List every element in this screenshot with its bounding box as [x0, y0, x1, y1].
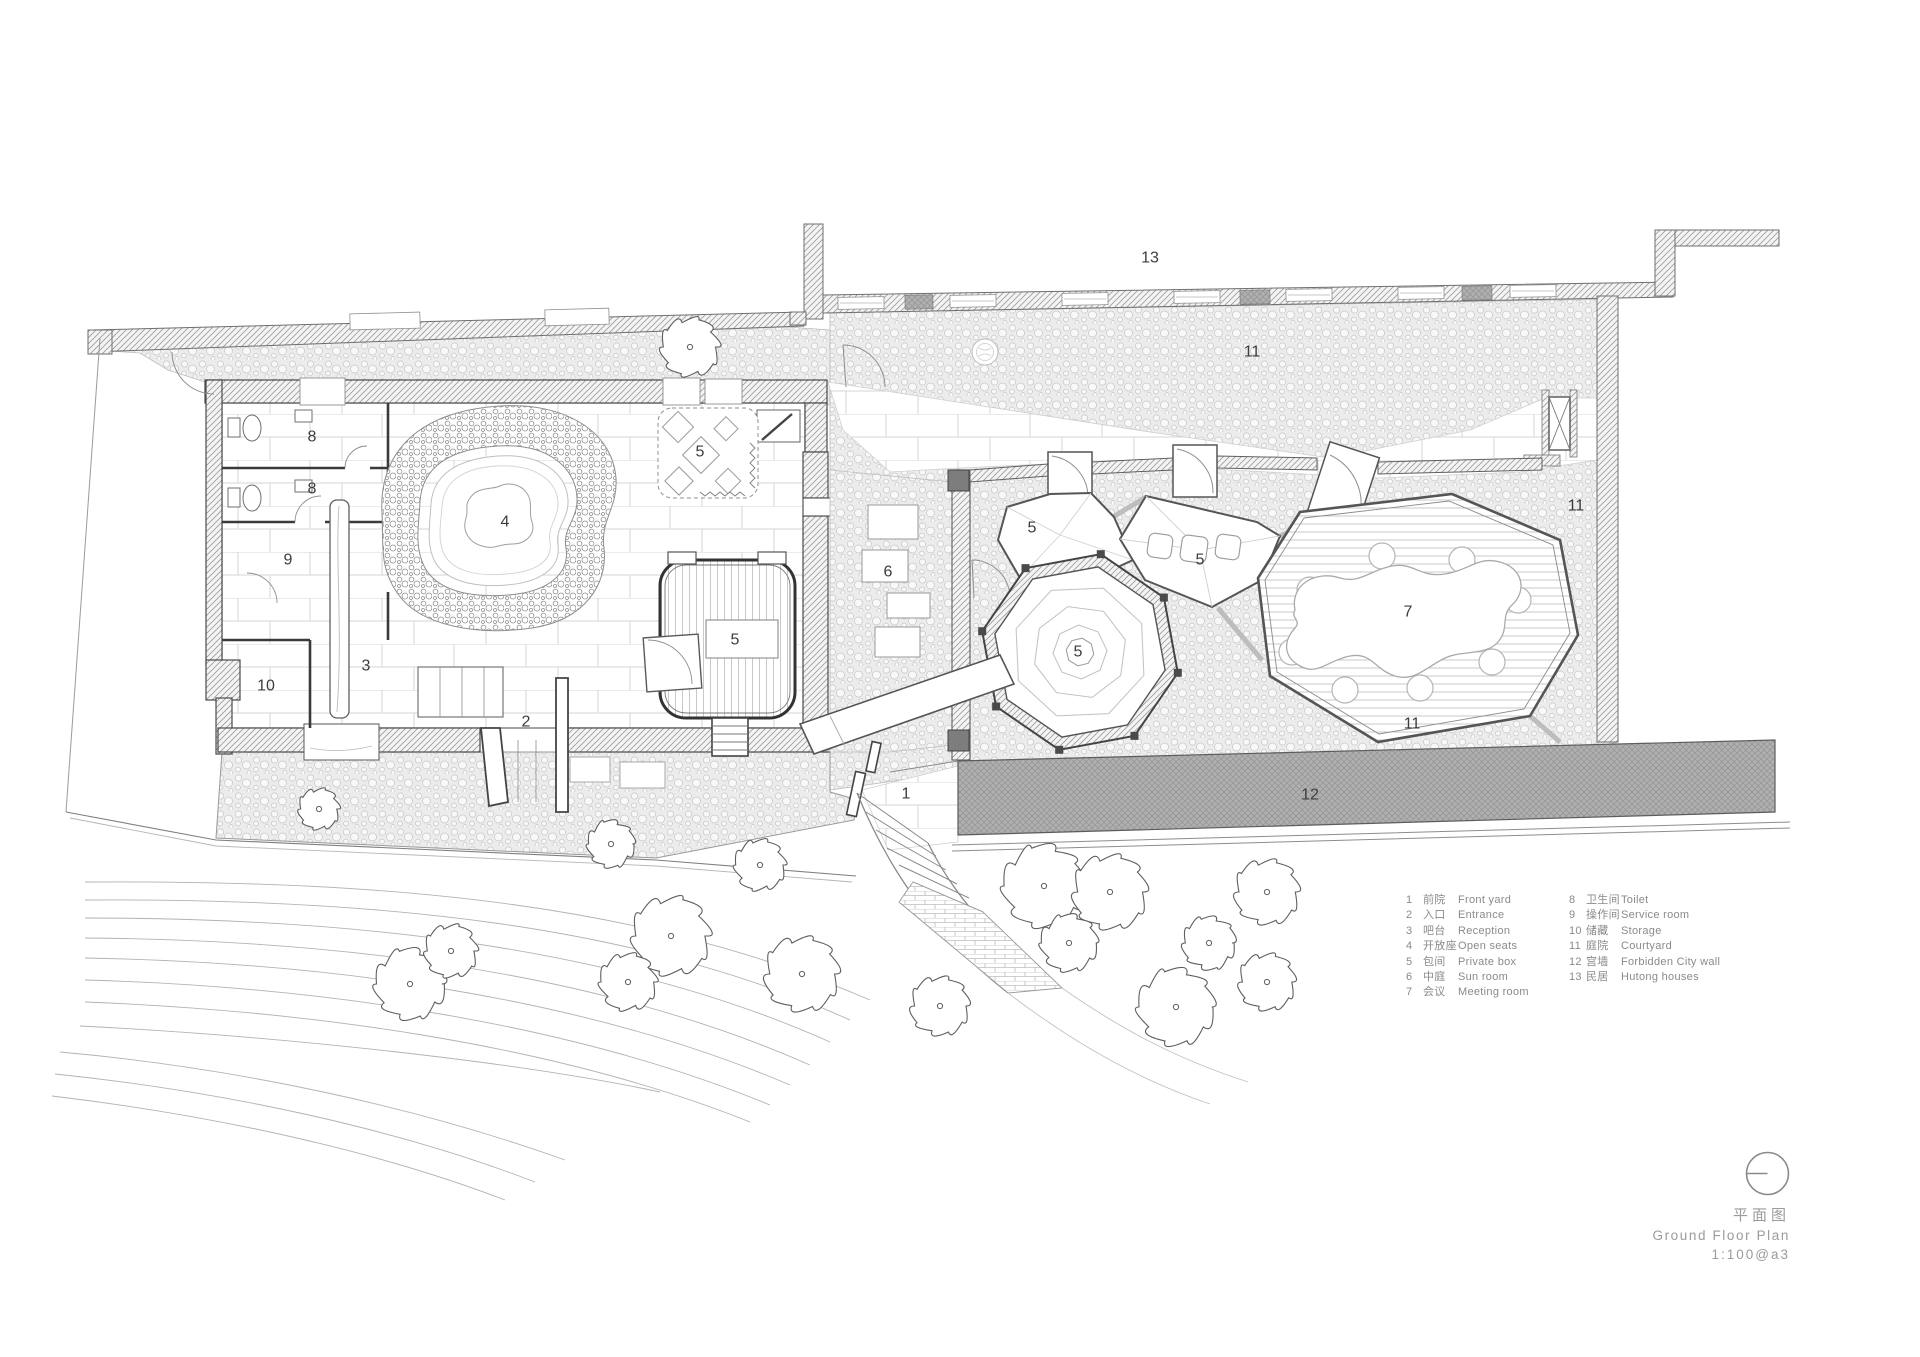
legend-row: 3吧台Reception — [1406, 924, 1561, 939]
legend-num: 4 — [1406, 939, 1423, 954]
legend-row: 5包间Private box — [1406, 955, 1561, 970]
drawing-scale: 1:100@a3 — [1652, 1245, 1790, 1264]
legend-en: Front yard — [1458, 893, 1511, 908]
plan-room-label: 1 — [902, 786, 911, 803]
column-icon — [1130, 732, 1138, 740]
legend-row: 11庭院Courtyard — [1569, 939, 1720, 954]
legend-row: 9操作间Service room — [1569, 908, 1720, 923]
legend-num: 8 — [1569, 893, 1586, 908]
legend-num: 13 — [1569, 970, 1586, 985]
plan-room-label: 5 — [1028, 520, 1037, 537]
legend-en: Service room — [1621, 908, 1689, 923]
legend-num: 10 — [1569, 924, 1586, 939]
legend-cn: 中庭 — [1423, 970, 1458, 985]
plan-room-label: 2 — [522, 714, 531, 731]
column-icon — [1174, 669, 1182, 677]
legend-column: 1前院Front yard2入口Entrance3吧台Reception4开放座… — [1406, 893, 1561, 1001]
legend-cn: 包间 — [1423, 955, 1458, 970]
floor-plan-canvas: 13111111128891034552165557 — [0, 0, 1920, 1357]
legend-row: 10储藏Storage — [1569, 924, 1720, 939]
legend-row: 8卫生间Toilet — [1569, 893, 1720, 908]
plan-room-label: 11 — [1404, 716, 1421, 733]
reception-counter — [330, 500, 349, 718]
legend-en: Open seats — [1458, 939, 1517, 954]
plan-room-label: 3 — [362, 658, 371, 675]
legend-en: Meeting room — [1458, 985, 1529, 1000]
plan-room-label: 12 — [1301, 787, 1319, 804]
legend-en: Toilet — [1621, 893, 1648, 908]
legend-num: 2 — [1406, 908, 1423, 923]
column-icon — [948, 470, 969, 491]
legend-cn: 卫生间 — [1586, 893, 1621, 908]
drawing-sheet: { "sheet": { "background": "#ffffff", "i… — [0, 0, 1920, 1357]
plan-room-label: 11 — [1568, 498, 1585, 515]
legend-cn: 民居 — [1586, 970, 1621, 985]
legend-cn: 开放座 — [1423, 939, 1458, 954]
drawing-title-en: Ground Floor Plan — [1652, 1226, 1790, 1245]
north-symbol-icon — [1744, 1150, 1791, 1197]
stair-icon — [712, 718, 748, 756]
plan-room-label: 5 — [1196, 552, 1205, 569]
drawing-title-cn: 平面图 — [1652, 1206, 1790, 1226]
plan-room-label: 5 — [696, 444, 705, 461]
legend-en: Forbidden City wall — [1621, 955, 1720, 970]
legend-en: Sun room — [1458, 970, 1508, 985]
legend-num: 11 — [1569, 939, 1586, 954]
legend-row: 7会议Meeting room — [1406, 985, 1561, 1000]
column-icon — [1022, 564, 1030, 572]
legend-num: 9 — [1569, 908, 1586, 923]
legend-en: Hutong houses — [1621, 970, 1699, 985]
legend-cn: 前院 — [1423, 893, 1458, 908]
private-box-north — [658, 408, 758, 498]
legend-num: 1 — [1406, 893, 1423, 908]
legend-num: 6 — [1406, 970, 1423, 985]
legend-cn: 吧台 — [1423, 924, 1458, 939]
legend-row: 6中庭Sun room — [1406, 970, 1561, 985]
legend-cn: 庭院 — [1586, 939, 1621, 954]
plan-room-label: 10 — [257, 678, 275, 695]
plan-room-label: 5 — [1074, 644, 1083, 661]
column-icon — [992, 702, 1000, 710]
open-seats-ring — [382, 406, 616, 631]
legend-en: Reception — [1458, 924, 1510, 939]
legend-en: Entrance — [1458, 908, 1504, 923]
legend-row: 13民居Hutong houses — [1569, 970, 1720, 985]
legend-en: Storage — [1621, 924, 1662, 939]
legend-cn: 宫墙 — [1586, 955, 1621, 970]
plan-room-label: 6 — [884, 564, 893, 581]
plan-room-label: 8 — [308, 429, 317, 446]
legend-cn: 入口 — [1423, 908, 1458, 923]
legend-en: Private box — [1458, 955, 1516, 970]
plan-room-label: 9 — [284, 552, 293, 569]
legend-num: 5 — [1406, 955, 1423, 970]
column-icon — [1055, 746, 1063, 754]
legend-num: 12 — [1569, 955, 1586, 970]
legend-column: 8卫生间Toilet9操作间Service room10储藏Storage11庭… — [1569, 893, 1720, 1001]
legend-row: 2入口Entrance — [1406, 908, 1561, 923]
column-icon — [1097, 550, 1105, 558]
legend-row: 1前院Front yard — [1406, 893, 1561, 908]
legend-num: 7 — [1406, 985, 1423, 1000]
column-icon — [978, 627, 986, 635]
plan-room-label: 8 — [308, 481, 317, 498]
plan-room-label: 5 — [731, 632, 740, 649]
legend-en: Courtyard — [1621, 939, 1672, 954]
column-icon — [1160, 594, 1168, 602]
legend: 1前院Front yard2入口Entrance3吧台Reception4开放座… — [1406, 893, 1720, 1001]
plan-room-label: 13 — [1141, 250, 1159, 267]
plan-room-label: 4 — [501, 514, 510, 531]
plan-room-label: 11 — [1244, 344, 1261, 361]
legend-cn: 操作间 — [1586, 908, 1621, 923]
legend-row: 4开放座Open seats — [1406, 939, 1561, 954]
title-block: 平面图 Ground Floor Plan 1:100@a3 — [1652, 1206, 1790, 1264]
legend-row: 12宫墙Forbidden City wall — [1569, 955, 1720, 970]
column-icon — [948, 730, 969, 751]
legend-cn: 储藏 — [1586, 924, 1621, 939]
plan-room-label: 7 — [1404, 604, 1413, 621]
legend-num: 3 — [1406, 924, 1423, 939]
legend-cn: 会议 — [1423, 985, 1458, 1000]
